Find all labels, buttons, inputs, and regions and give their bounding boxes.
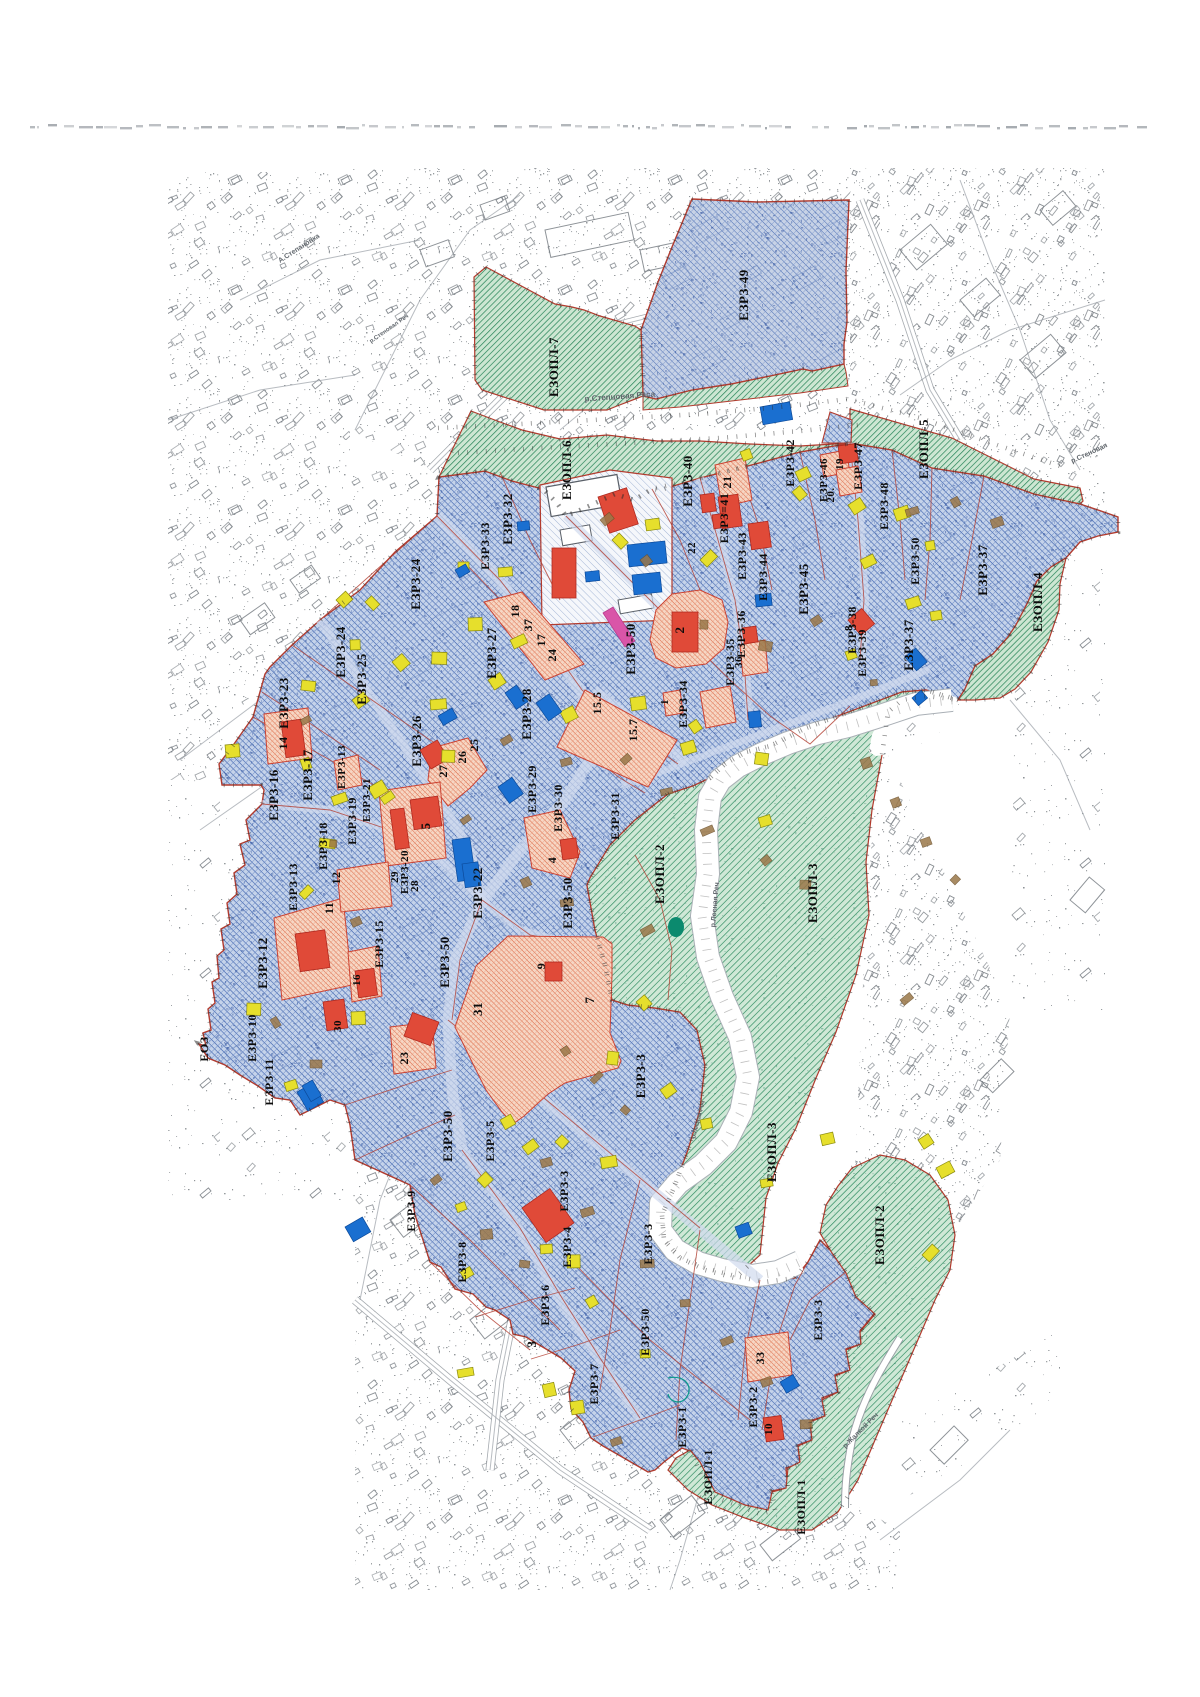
svg-text:ЕЗОПЛ-6: ЕЗОПЛ-6 (559, 440, 574, 500)
svg-text:31: 31 (470, 1002, 485, 1016)
svg-text:ЕЗОПЛ-5: ЕЗОПЛ-5 (916, 419, 931, 479)
svg-text:ЕЗОПЛ-7: ЕЗОПЛ-7 (546, 337, 561, 397)
svg-text:ЕЗРЗ-50: ЕЗРЗ-50 (908, 537, 922, 585)
svg-text:ЕЗРЗ-5: ЕЗРЗ-5 (483, 1120, 497, 1161)
svg-text:28: 28 (409, 880, 421, 892)
svg-text:ЕЗРЗ-19: ЕЗРЗ-19 (345, 797, 359, 845)
svg-text:ЕЗРЗ-40: ЕЗРЗ-40 (680, 455, 695, 506)
svg-text:ЕЗРЗ-21: ЕЗРЗ-21 (361, 778, 373, 822)
svg-text:ЕЗРЗ-12: ЕЗРЗ-12 (255, 937, 270, 988)
svg-text:ЕЗРЗ-34: ЕЗРЗ-34 (676, 680, 690, 728)
svg-text:ЕЗРЗ-50: ЕЗРЗ-50 (437, 936, 452, 987)
svg-text:16: 16 (351, 974, 363, 986)
svg-text:ЕЗОПЛ-4: ЕЗОПЛ-4 (1030, 572, 1045, 632)
svg-text:ЕЗРЗ-45: ЕЗРЗ-45 (796, 563, 811, 614)
svg-text:ЕЗРЗ-1: ЕЗРЗ-1 (675, 1406, 689, 1447)
svg-text:25: 25 (467, 739, 481, 752)
svg-text:ЕЗРЗ-44: ЕЗРЗ-44 (756, 553, 770, 601)
svg-text:ЕЗРЗ-24: ЕЗРЗ-24 (333, 626, 348, 677)
svg-text:21: 21 (720, 476, 734, 489)
svg-text:ЕЗРЗ-17: ЕЗРЗ-17 (300, 749, 315, 800)
svg-text:1: 1 (659, 699, 671, 705)
svg-text:ЕЗРЗ-3: ЕЗРЗ-3 (633, 1054, 648, 1098)
svg-text:23: 23 (397, 1052, 411, 1065)
svg-text:ЕЗОПЛ-2: ЕЗОПЛ-2 (652, 844, 667, 904)
svg-text:8: 8 (843, 625, 855, 631)
svg-text:22: 22 (686, 542, 698, 554)
svg-text:ЕЗРЗ-11: ЕЗРЗ-11 (262, 1058, 276, 1105)
svg-text:2: 2 (672, 627, 687, 634)
svg-text:ЕЗРЗ-28: ЕЗРЗ-28 (519, 688, 534, 739)
svg-text:12: 12 (329, 872, 343, 885)
svg-text:9: 9 (534, 963, 548, 970)
svg-text:36: 36 (733, 656, 745, 668)
svg-text:ЕЗРЗ-29: ЕЗРЗ-29 (525, 765, 539, 813)
svg-text:ЕЗРЗ-37: ЕЗРЗ-37 (975, 544, 990, 595)
svg-text:ЕЗРЗ-2: ЕЗРЗ-2 (746, 1386, 760, 1427)
svg-text:4: 4 (545, 857, 559, 864)
svg-text:ЕЗРЗ-22: ЕЗРЗ-22 (470, 867, 485, 918)
svg-text:15.5: 15.5 (590, 692, 604, 715)
svg-text:ЕЗРЗ-50: ЕЗРЗ-50 (560, 877, 575, 928)
svg-text:ЕОЗ: ЕОЗ (197, 1036, 211, 1061)
svg-text:5: 5 (418, 823, 433, 830)
svg-text:3: 3 (524, 1341, 539, 1348)
svg-text:ЕЗРЗ-42: ЕЗРЗ-42 (783, 439, 797, 487)
svg-text:ЕЗРЗ-48: ЕЗРЗ-48 (877, 482, 891, 530)
svg-text:ЕЗРЗ-26: ЕЗРЗ-26 (409, 715, 424, 766)
svg-text:ЕЗРЗ-37: ЕЗРЗ-37 (901, 619, 916, 670)
svg-text:ЕЗРЗ-31: ЕЗРЗ-31 (608, 792, 622, 840)
svg-text:ЕЗОПЛ-3: ЕЗОПЛ-3 (805, 863, 820, 923)
svg-text:ЕЗРЗ-3: ЕЗРЗ-3 (811, 1299, 825, 1340)
svg-text:ЕЗРЗ-4: ЕЗРЗ-4 (560, 1226, 574, 1267)
svg-text:19: 19 (834, 458, 846, 470)
svg-text:ЕЗРЗ-30: ЕЗРЗ-30 (551, 784, 565, 832)
svg-text:ЕЗРЗ-25: ЕЗРЗ-25 (354, 653, 369, 704)
svg-text:ЕЗРЗ-3: ЕЗРЗ-3 (557, 1170, 571, 1211)
svg-text:11: 11 (322, 902, 336, 914)
svg-text:ЕЗРЗ-15: ЕЗРЗ-15 (372, 920, 386, 968)
svg-text:ЕЗРЗ=41: ЕЗРЗ=41 (717, 493, 731, 544)
svg-text:ЕЗРЗ-23: ЕЗРЗ-23 (276, 677, 291, 728)
svg-text:ЕЗОПЛ-1: ЕЗОПЛ-1 (701, 1449, 715, 1505)
svg-text:ЕЗРЗ-50: ЕЗРЗ-50 (638, 1308, 652, 1356)
svg-text:ЕЗОПЛ-1: ЕЗОПЛ-1 (794, 1479, 808, 1535)
svg-text:37: 37 (521, 619, 535, 632)
svg-text:ЕЗРЗ-6: ЕЗРЗ-6 (538, 1284, 552, 1325)
svg-text:15.7: 15.7 (626, 719, 640, 742)
svg-text:7: 7 (582, 997, 597, 1004)
svg-text:30: 30 (332, 1020, 344, 1032)
svg-text:33: 33 (753, 1352, 767, 1365)
svg-text:ЕЗРЗ-13: ЕЗРЗ-13 (336, 745, 348, 789)
svg-text:17: 17 (534, 634, 548, 647)
svg-text:ЕЗРЗ-18: ЕЗРЗ-18 (316, 822, 330, 870)
svg-text:ЕЗОПЛ-2: ЕЗОПЛ-2 (872, 1205, 887, 1265)
svg-text:ЕЗРЗ-24: ЕЗРЗ-24 (408, 558, 423, 609)
svg-text:27: 27 (436, 765, 450, 778)
svg-text:ЕЗРЗ-8: ЕЗРЗ-8 (455, 1241, 469, 1282)
svg-text:ЕЗРЗ-39: ЕЗРЗ-39 (855, 629, 869, 677)
svg-text:ЕЗРЗ-7: ЕЗРЗ-7 (587, 1363, 601, 1404)
svg-text:ЕЗРЗ-50: ЕЗРЗ-50 (440, 1110, 455, 1161)
svg-text:ЕЗРЗ-27: ЕЗРЗ-27 (484, 627, 499, 678)
svg-text:ЕЗРЗ-32: ЕЗРЗ-32 (500, 493, 515, 544)
svg-text:ЕЗРЗ-33: ЕЗРЗ-33 (478, 522, 492, 570)
svg-text:ЕЗРЗ-9: ЕЗРЗ-9 (404, 1190, 418, 1231)
svg-text:ЕЗРЗ-13: ЕЗРЗ-13 (286, 863, 300, 911)
svg-text:24: 24 (545, 649, 559, 662)
svg-text:ЕЗРЗ-47: ЕЗРЗ-47 (851, 442, 865, 490)
svg-text:ЕЗОПЛ-3: ЕЗОПЛ-3 (764, 1122, 779, 1182)
svg-text:ЕЗРЗ-36: ЕЗРЗ-36 (734, 610, 748, 658)
svg-text:ЕЗРЗ-43: ЕЗРЗ-43 (735, 532, 749, 580)
svg-text:10: 10 (763, 1423, 775, 1435)
svg-text:ЕЗРЗ-16: ЕЗРЗ-16 (266, 769, 281, 820)
svg-text:ЕЗРЗ-10: ЕЗРЗ-10 (245, 1014, 259, 1062)
svg-text:ЕЗРЗ-50: ЕЗРЗ-50 (623, 623, 638, 674)
svg-text:ЕЗРЗ-3: ЕЗРЗ-3 (641, 1223, 655, 1264)
svg-text:20.: 20. (825, 487, 837, 502)
svg-text:14: 14 (276, 737, 290, 750)
svg-text:18: 18 (508, 605, 522, 618)
svg-text:ЕЗРЗ-49: ЕЗРЗ-49 (736, 269, 751, 320)
